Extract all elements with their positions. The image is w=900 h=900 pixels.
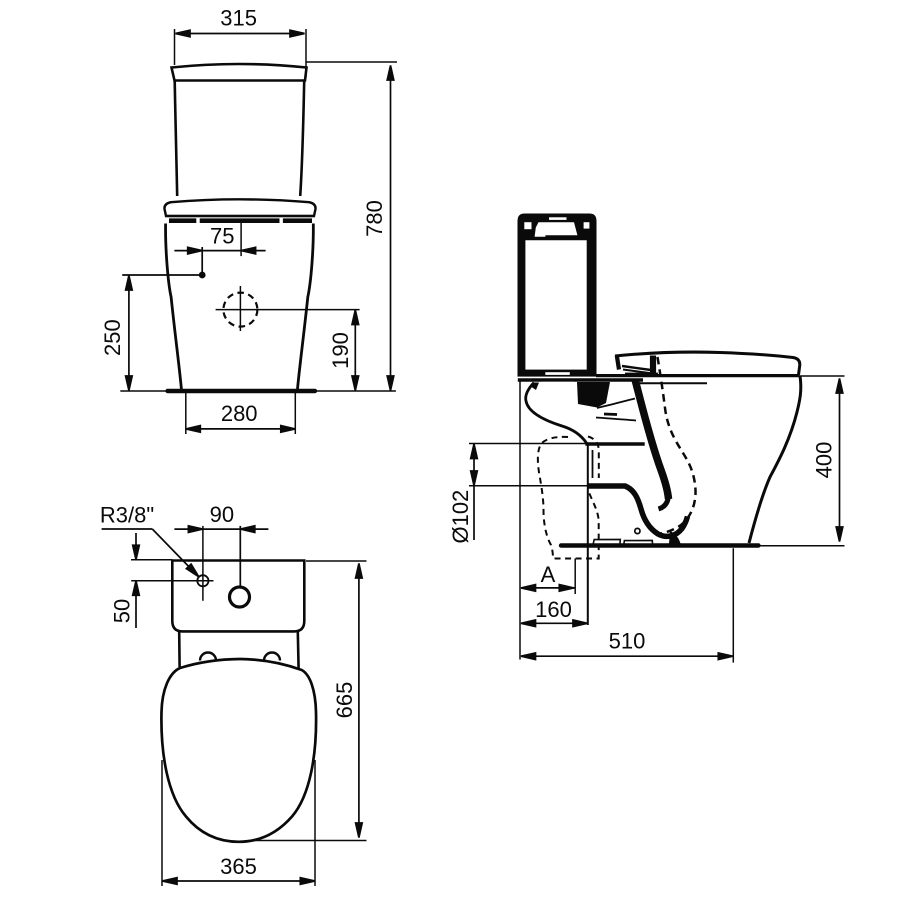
svg-text:365: 365 <box>220 854 257 879</box>
svg-text:510: 510 <box>609 629 646 654</box>
svg-text:190: 190 <box>328 332 353 369</box>
svg-text:90: 90 <box>210 502 234 527</box>
svg-text:A: A <box>541 562 556 587</box>
svg-text:50: 50 <box>110 599 135 623</box>
svg-text:665: 665 <box>332 682 357 719</box>
svg-text:75: 75 <box>210 224 234 249</box>
svg-text:280: 280 <box>221 401 258 426</box>
svg-text:Ø102: Ø102 <box>448 490 473 544</box>
svg-text:400: 400 <box>812 442 837 479</box>
svg-text:250: 250 <box>100 319 125 356</box>
svg-text:780: 780 <box>362 200 387 237</box>
svg-text:160: 160 <box>535 597 572 622</box>
svg-text:315: 315 <box>220 6 257 31</box>
svg-text:R3/8": R3/8" <box>100 503 154 528</box>
